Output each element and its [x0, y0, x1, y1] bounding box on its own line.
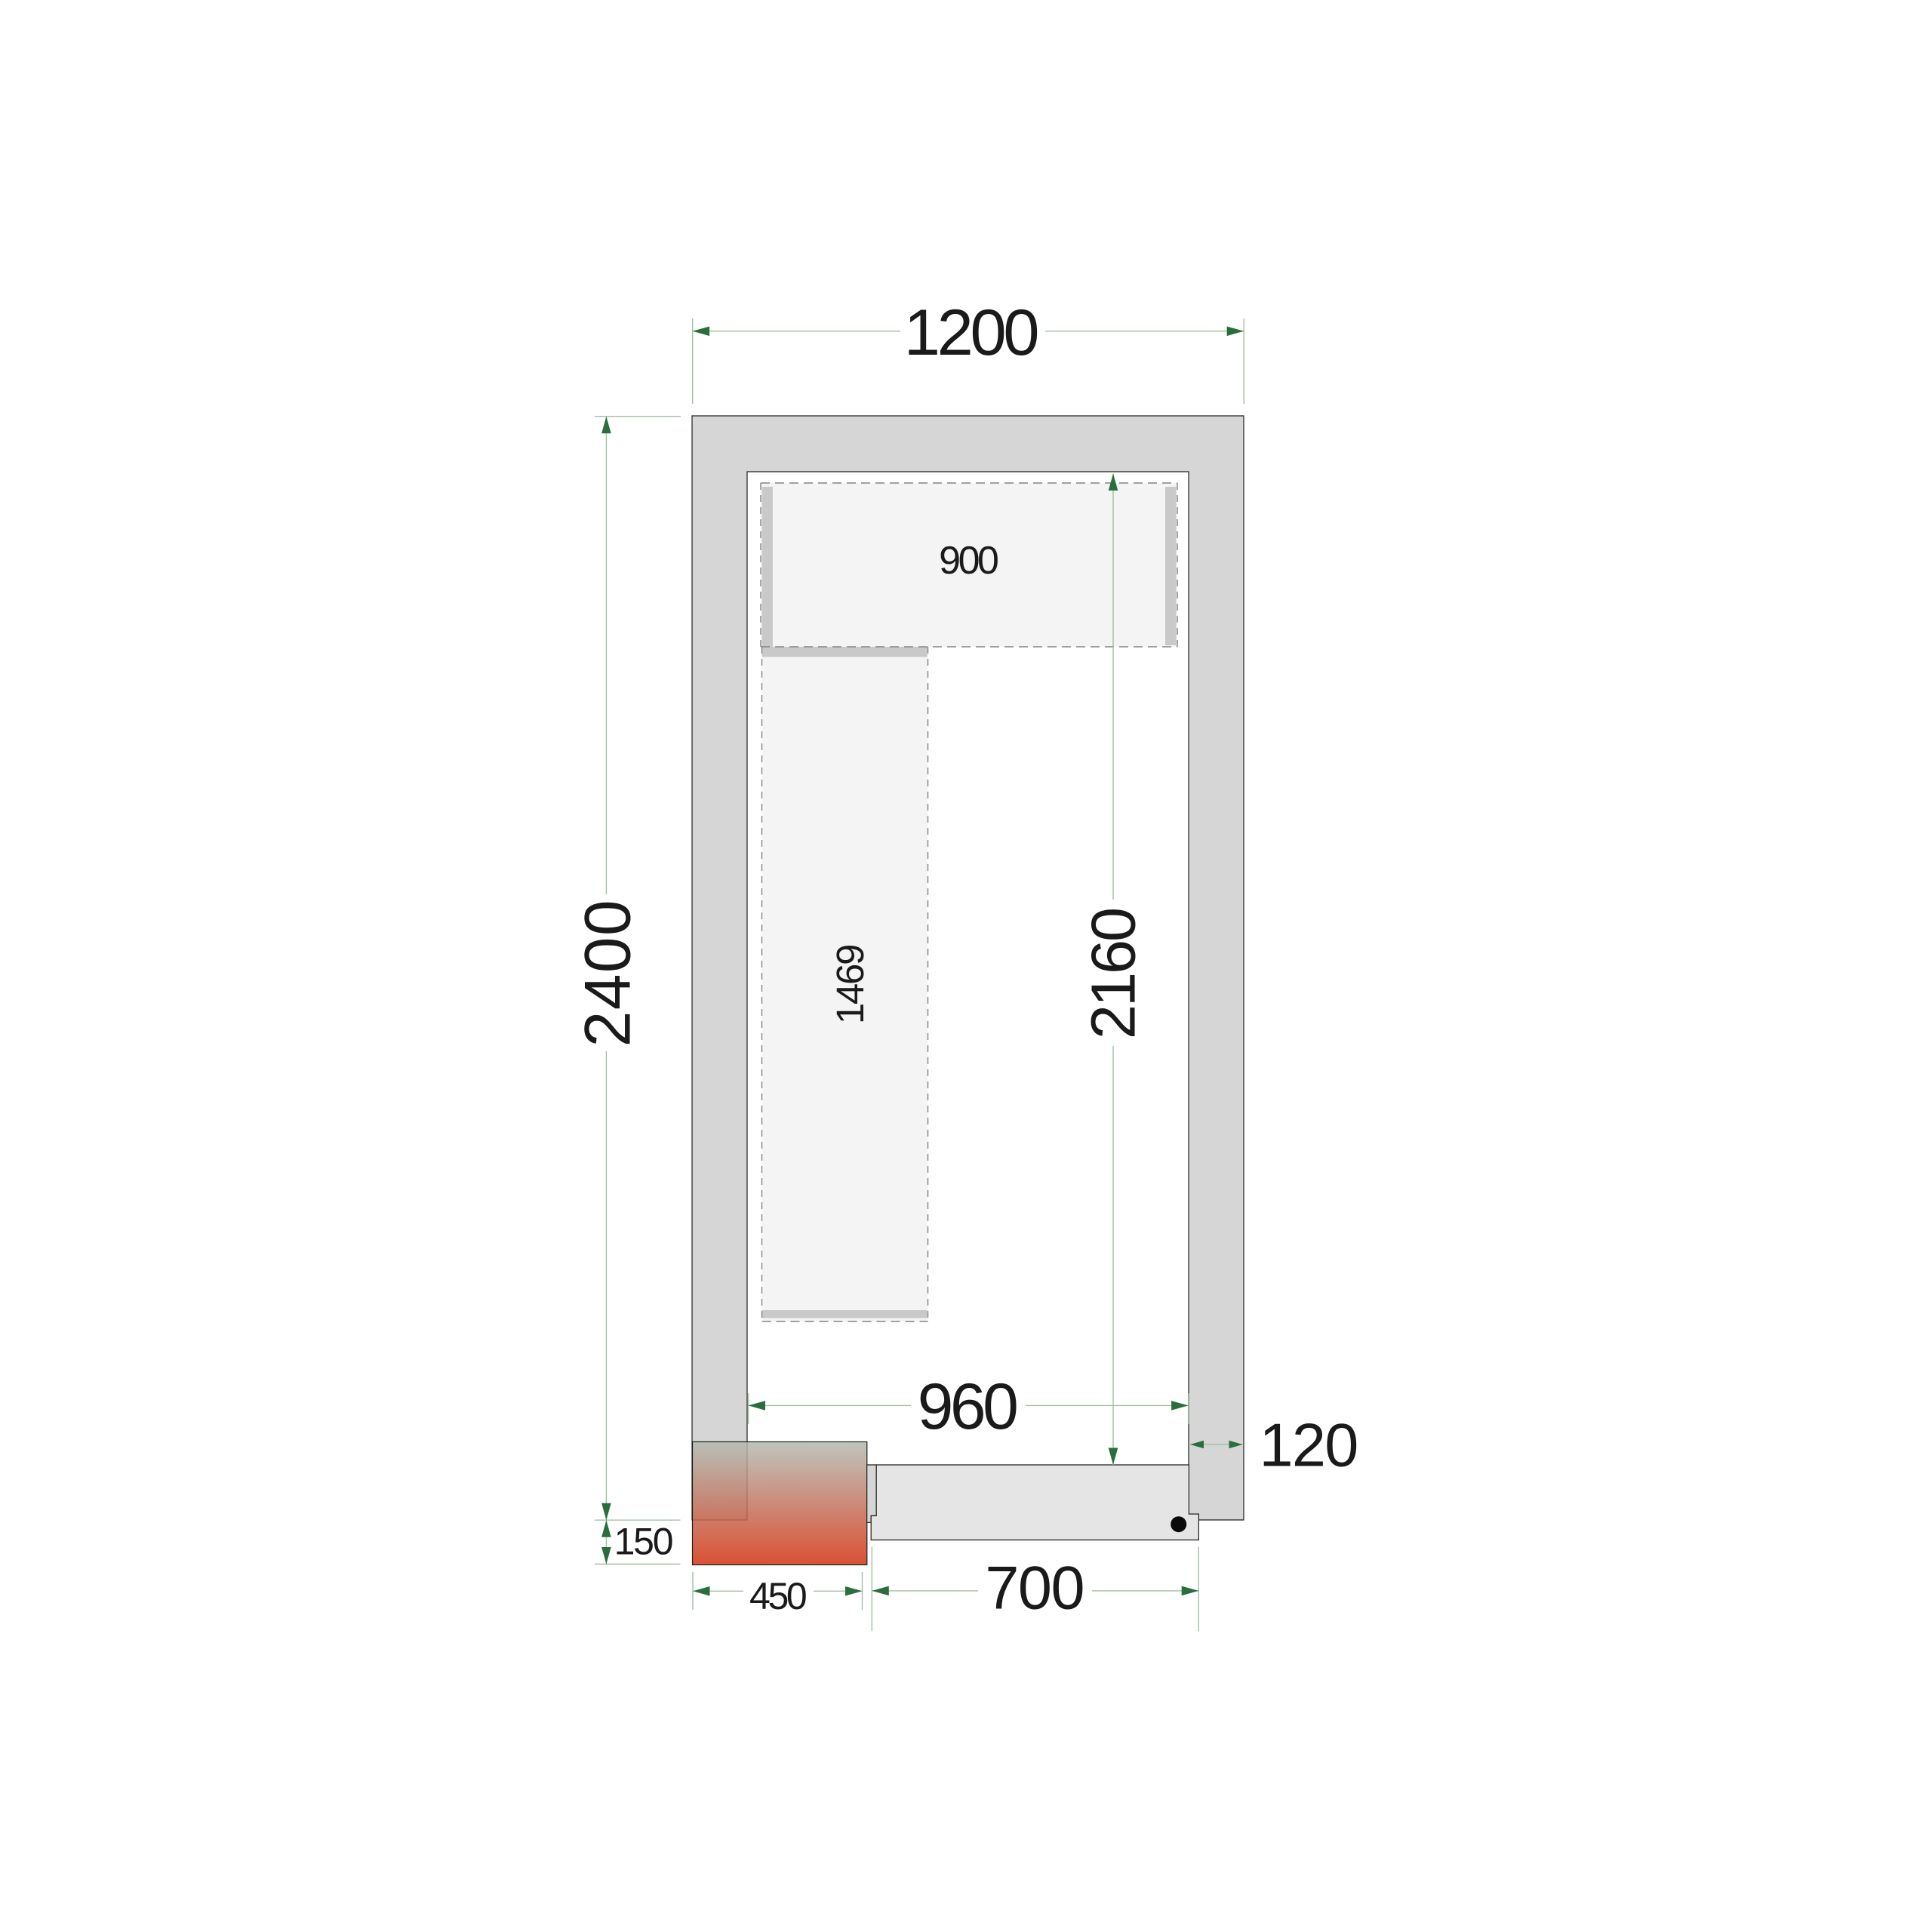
svg-text:960: 960	[918, 1371, 1017, 1443]
svg-text:2400: 2400	[572, 899, 645, 1047]
svg-text:1200: 1200	[904, 297, 1038, 369]
svg-text:120: 120	[1259, 1411, 1357, 1479]
svg-text:450: 450	[749, 1575, 806, 1617]
svg-text:700: 700	[985, 1554, 1084, 1622]
svg-text:2160: 2160	[1078, 909, 1149, 1039]
svg-text:900: 900	[939, 539, 998, 583]
svg-text:150: 150	[614, 1520, 672, 1562]
svg-text:1469: 1469	[829, 946, 872, 1024]
